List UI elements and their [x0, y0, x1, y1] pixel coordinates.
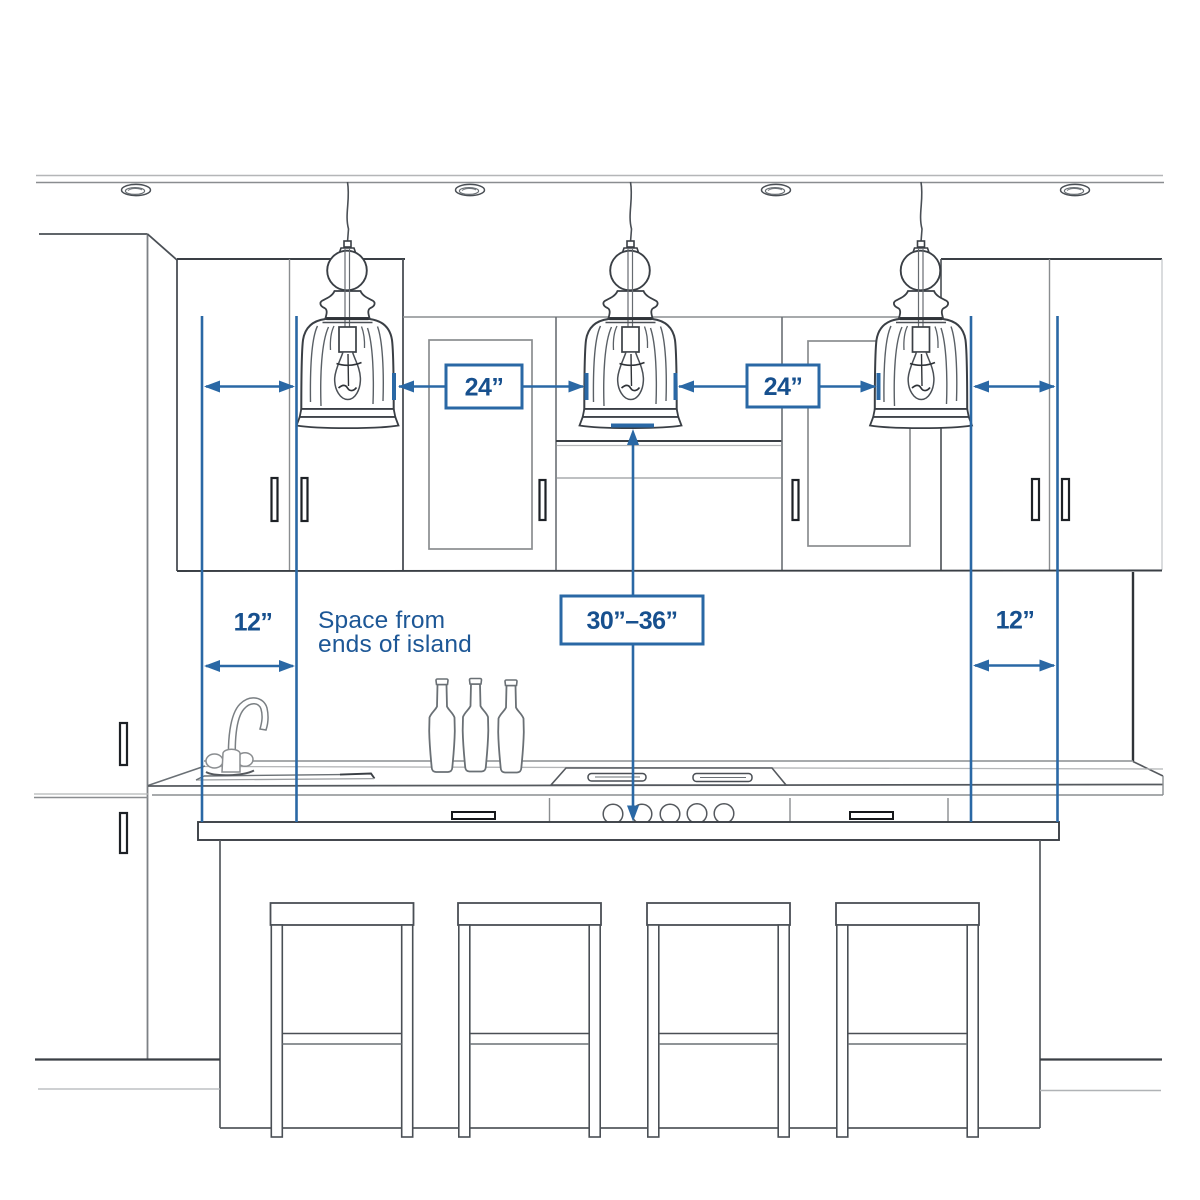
svg-text:30”–36”: 30”–36” — [586, 607, 677, 635]
svg-text:Space from: Space from — [318, 607, 445, 634]
svg-text:12”: 12” — [996, 607, 1035, 635]
svg-text:24”: 24” — [764, 373, 803, 401]
svg-text:24”: 24” — [465, 374, 504, 402]
svg-text:ends of island: ends of island — [318, 631, 472, 658]
svg-text:12”: 12” — [234, 609, 273, 637]
